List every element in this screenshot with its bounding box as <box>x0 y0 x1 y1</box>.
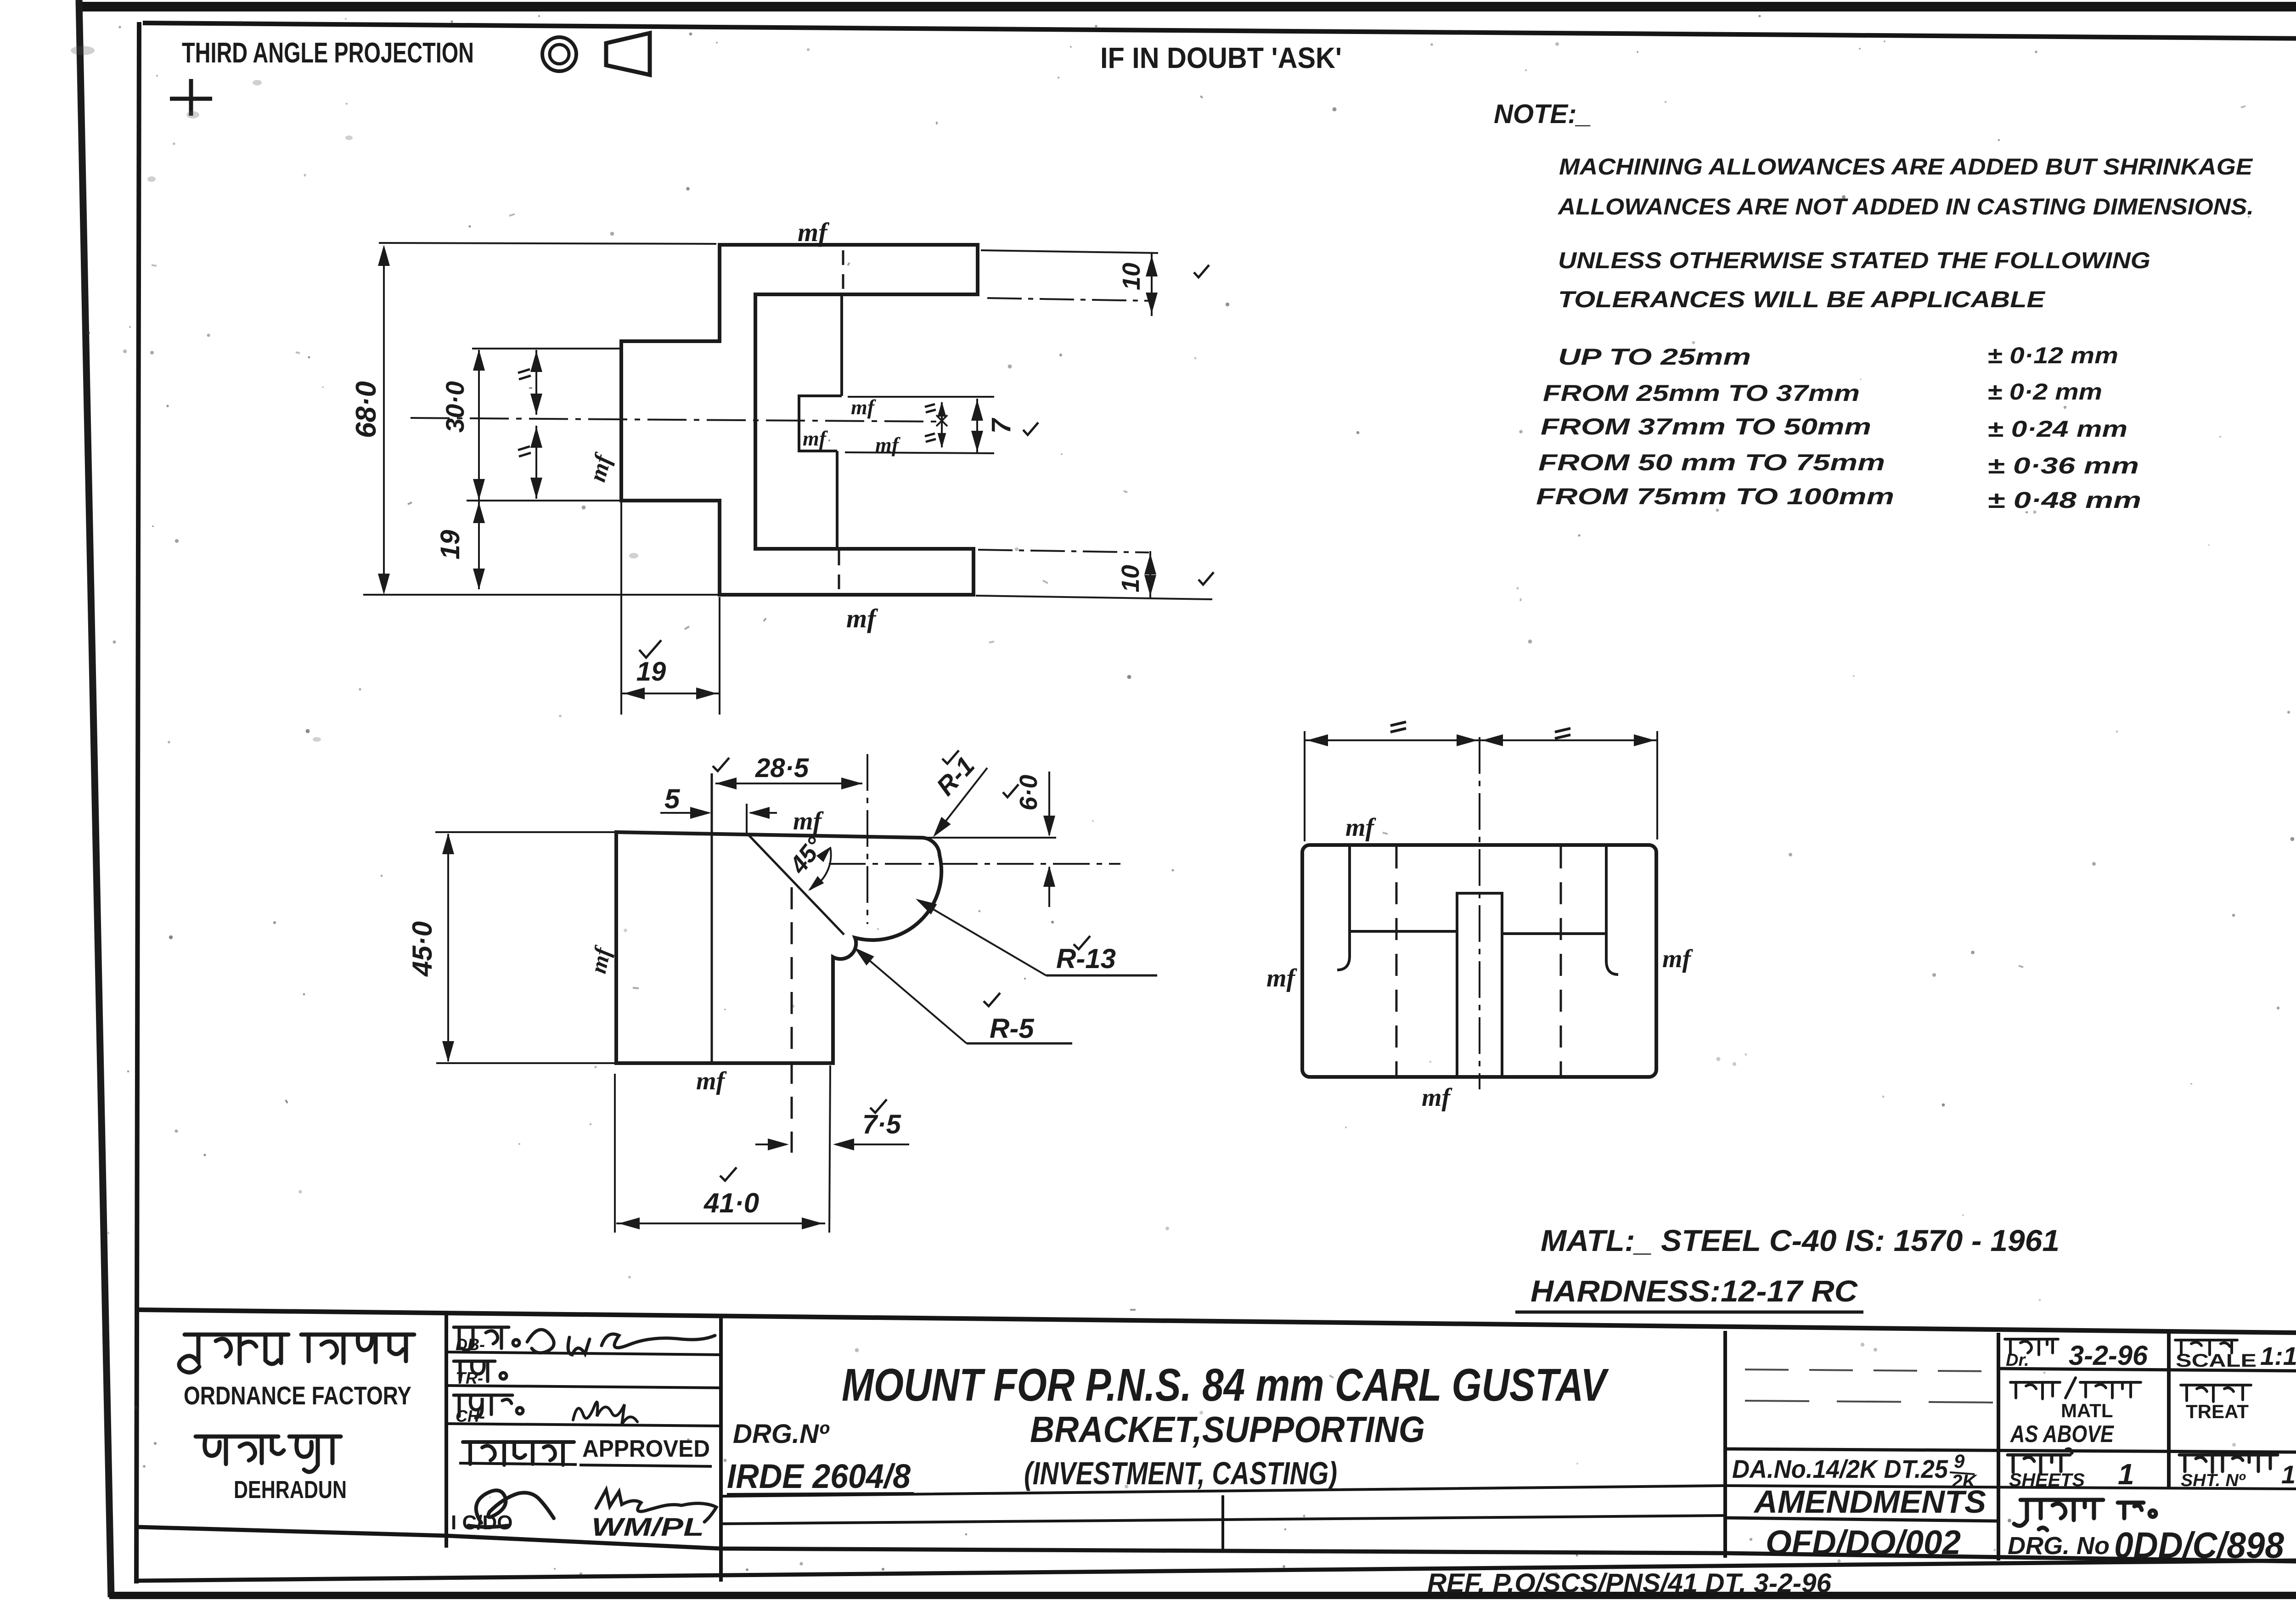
svg-text:mf: mf <box>803 427 828 450</box>
svg-text:IRDE 2604/8: IRDE 2604/8 <box>727 1457 911 1495</box>
svg-text:DA.No.14/2K DT.25: DA.No.14/2K DT.25 <box>1732 1454 1948 1483</box>
svg-text:(INVESTMENT, CASTING): (INVESTMENT, CASTING) <box>1024 1455 1337 1491</box>
svg-text:AMENDMENTS: AMENDMENTS <box>1753 1484 1986 1520</box>
svg-text:UP TO 25mm: UP TO 25mm <box>1558 344 1751 370</box>
svg-text:28·5: 28·5 <box>755 753 809 783</box>
svg-text:± 0·2 mm: ± 0·2 mm <box>1987 379 2102 405</box>
svg-text:1:1: 1:1 <box>2260 1341 2296 1370</box>
svg-text:mf: mf <box>793 807 824 835</box>
svg-text:± 0·48 mm: ± 0·48 mm <box>1987 487 2141 513</box>
svg-text:MATL: MATL <box>2061 1400 2113 1421</box>
svg-text:± 0·12 mm: ± 0·12 mm <box>1987 343 2118 368</box>
svg-text:TOLERANCES WILL BE APPLICABLE: TOLERANCES WILL BE APPLICABLE <box>1558 287 2046 312</box>
svg-text:mf: mf <box>1422 1083 1453 1112</box>
svg-text:19: 19 <box>636 657 666 687</box>
svg-text:9: 9 <box>1954 1450 1965 1472</box>
svg-text:6·0: 6·0 <box>1015 775 1042 811</box>
svg-text:SHT. Nº: SHT. Nº <box>2181 1471 2246 1490</box>
svg-text:MACHINING ALLOWANCES ARE ADDED: MACHINING ALLOWANCES ARE ADDED BUT SHRIN… <box>1559 154 2253 180</box>
svg-text:I C/DO: I C/DO <box>451 1511 512 1534</box>
svg-text:± 0·36 mm: ± 0·36 mm <box>1987 453 2139 479</box>
svg-text:NOTE:_: NOTE:_ <box>1494 99 1592 129</box>
svg-text:mf: mf <box>798 217 830 247</box>
svg-text:68·0: 68·0 <box>350 381 382 438</box>
svg-text:AS ABOVE: AS ABOVE <box>2009 1421 2114 1448</box>
svg-text:R-5: R-5 <box>990 1013 1035 1044</box>
svg-text:R-13: R-13 <box>1056 943 1116 974</box>
svg-text:45·0: 45·0 <box>407 921 438 977</box>
svg-text:DB-: DB- <box>456 1335 485 1354</box>
svg-text:ORDNANCE FACTORY: ORDNANCE FACTORY <box>184 1381 411 1410</box>
svg-text:FROM 75mm TO 100mm: FROM 75mm TO 100mm <box>1536 484 1894 509</box>
svg-text:0DD/C/898: 0DD/C/898 <box>2114 1525 2284 1566</box>
svg-text:mf: mf <box>1266 964 1298 992</box>
svg-text:ALLOWANCES ARE NOT ADDED IN CA: ALLOWANCES ARE NOT ADDED IN CASTING DIME… <box>1557 194 2254 220</box>
svg-text:HARDNESS:12-17 RC: HARDNESS:12-17 RC <box>1531 1274 1858 1308</box>
svg-text:TREAT: TREAT <box>2186 1401 2249 1422</box>
svg-text:IF IN DOUBT 'ASK': IF IN DOUBT 'ASK' <box>1100 41 1342 74</box>
svg-text:mf: mf <box>875 433 901 456</box>
svg-text:SCALE: SCALE <box>2176 1351 2257 1371</box>
svg-text:DRG.Nº: DRG.Nº <box>733 1419 830 1449</box>
svg-text:DRG. No: DRG. No <box>2008 1532 2110 1560</box>
svg-text:TR-: TR- <box>456 1369 483 1387</box>
svg-text:41·0: 41·0 <box>703 1188 759 1218</box>
svg-text:REF. P.O/SCS/PNS/41 DT. 3-2-96: REF. P.O/SCS/PNS/41 DT. 3-2-96 <box>1427 1568 1832 1598</box>
svg-text:mf: mf <box>696 1067 727 1095</box>
svg-text:FROM 25mm TO 37mm: FROM 25mm TO 37mm <box>1543 380 1860 406</box>
svg-text:MATL:_ STEEL C-40 IS: 1570 - 1: MATL:_ STEEL C-40 IS: 1570 - 1961 <box>1541 1223 2060 1257</box>
svg-text:10: 10 <box>1118 263 1145 290</box>
svg-text:5: 5 <box>664 783 681 814</box>
svg-text:± 0·24 mm: ± 0·24 mm <box>1987 416 2127 442</box>
svg-text:10: 10 <box>1117 565 1144 592</box>
svg-text:APPROVED: APPROVED <box>582 1436 710 1462</box>
svg-text:3-2-96: 3-2-96 <box>2069 1340 2148 1371</box>
svg-text:OFD/DO/002: OFD/DO/002 <box>1766 1523 1961 1561</box>
svg-text:THIRD ANGLE PROJECTION: THIRD ANGLE PROJECTION <box>182 37 474 69</box>
svg-text:FROM 50 mm TO 75mm: FROM 50 mm TO 75mm <box>1538 450 1885 475</box>
svg-text:1: 1 <box>2281 1460 2296 1489</box>
svg-text:1: 1 <box>2118 1458 2134 1491</box>
svg-text:Dr.: Dr. <box>2006 1351 2029 1370</box>
svg-text:mf: mf <box>1662 945 1694 973</box>
svg-text:mf: mf <box>1345 813 1377 842</box>
svg-text:mf: mf <box>851 395 877 419</box>
svg-text:19: 19 <box>435 530 465 560</box>
svg-text:7·5: 7·5 <box>862 1110 901 1139</box>
svg-text:30·0: 30·0 <box>440 381 469 433</box>
svg-text:UNLESS OTHERWISE STATED THE FO: UNLESS OTHERWISE STATED THE FOLLOWING <box>1558 248 2150 273</box>
svg-text:SHEETS: SHEETS <box>2009 1470 2085 1490</box>
svg-text:MOUNT FOR P.N.S. 84 mm CARL GU: MOUNT FOR P.N.S. 84 mm CARL GUSTAV <box>842 1359 1609 1411</box>
svg-text:7: 7 <box>986 417 1016 434</box>
svg-text:CH-: CH- <box>456 1407 485 1425</box>
svg-text:BRACKET,SUPPORTING: BRACKET,SUPPORTING <box>1030 1409 1425 1450</box>
svg-text:mf: mf <box>846 603 878 633</box>
svg-text:FROM 37mm TO 50mm: FROM 37mm TO 50mm <box>1541 414 1871 439</box>
svg-text:WM/PL: WM/PL <box>591 1512 704 1541</box>
svg-text:DEHRADUN: DEHRADUN <box>234 1476 347 1504</box>
